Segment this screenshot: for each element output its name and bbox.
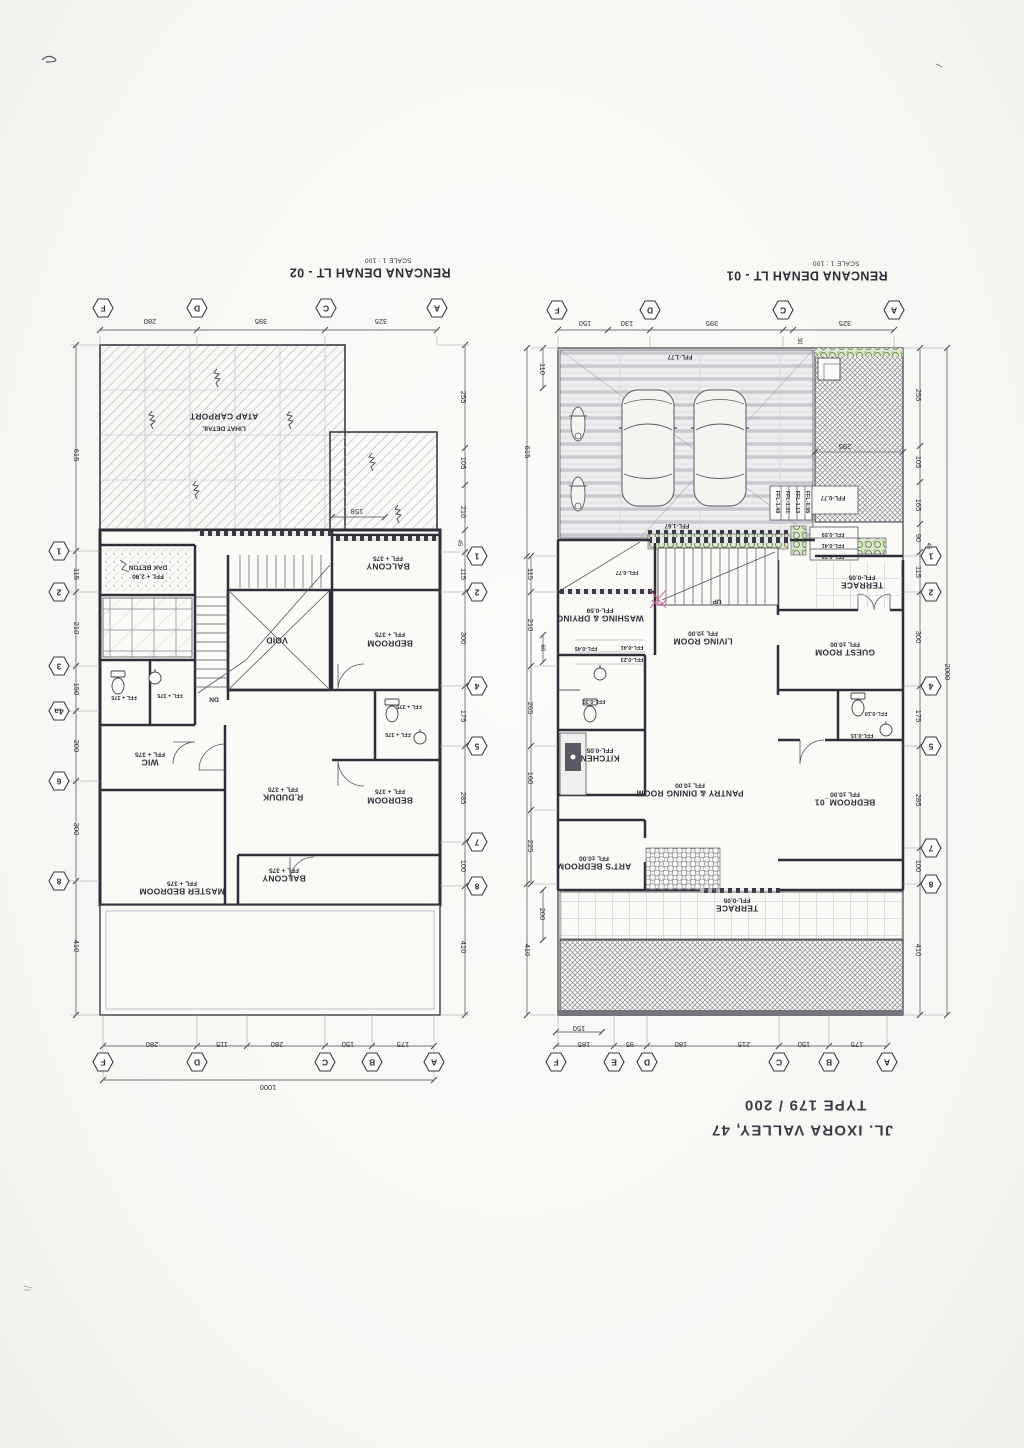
grid-bubble-label: A bbox=[434, 304, 440, 313]
dimension: 210 bbox=[526, 619, 534, 632]
plan-lt02-scale: SCALE 1 : 100 bbox=[365, 256, 412, 263]
level-label: FFL-0.77 bbox=[616, 568, 639, 574]
dimension: 180 bbox=[675, 1040, 688, 1048]
room-label: BEDROOM bbox=[367, 796, 413, 805]
dimension: 300 bbox=[459, 632, 467, 645]
grid-bubble-label: C bbox=[322, 1058, 328, 1067]
sheet-address-line: JL. IXORA VALLEY, 47 bbox=[711, 1123, 893, 1138]
dimension: 285 bbox=[459, 792, 467, 805]
level-label: FFL-1.77 bbox=[668, 353, 693, 359]
scanned-floorplan-sheet: SCALE 1 : 100 RENCANA DENAH LT - 02 SCAL… bbox=[0, 0, 1024, 1448]
room-label: BALCONY bbox=[262, 874, 305, 883]
dimension: 210 bbox=[72, 622, 80, 635]
dimension-total: 2000 bbox=[943, 664, 951, 681]
grid-bubble-label: A bbox=[891, 306, 897, 315]
grid-bubble-label: C bbox=[323, 304, 329, 313]
dimension: 115 bbox=[914, 566, 922, 578]
grid-bubble-label: D bbox=[644, 1058, 650, 1067]
dimension: 175 bbox=[851, 1040, 864, 1048]
dimension: 395 bbox=[706, 319, 719, 327]
room-sublabel: FFL-0.05 bbox=[724, 896, 751, 903]
dimension: 410 bbox=[72, 940, 80, 953]
dimension: 100 bbox=[459, 860, 467, 873]
grid-bubble-label: 4 bbox=[475, 682, 480, 691]
dimension: 395 bbox=[255, 317, 268, 325]
room-sublabel: FFL ±0.00 bbox=[579, 854, 609, 861]
dimension: 90 bbox=[914, 534, 922, 542]
dimension: 265 bbox=[526, 702, 534, 715]
level-label: FFL-0.23 bbox=[822, 552, 845, 558]
plan-lt01-title: RENCANA DENAH LT - 01 bbox=[726, 269, 887, 282]
grid-bubble-label: D bbox=[194, 1058, 200, 1067]
room-label: KITCHEN bbox=[580, 754, 619, 763]
dimension: 160 bbox=[526, 772, 534, 785]
dimension: 300 bbox=[72, 823, 80, 836]
dimension: 255 bbox=[914, 389, 922, 402]
room-label: BEDROOM bbox=[367, 639, 413, 648]
room-label: ATAP CARPORT bbox=[190, 412, 259, 421]
level-label: FFL-0.10 bbox=[865, 709, 888, 715]
room-sublabel: FFL ±0.00 bbox=[675, 781, 705, 788]
dimension: 105 bbox=[914, 456, 922, 469]
room-label: TERRACE bbox=[716, 904, 759, 913]
dimension: 60 bbox=[539, 645, 545, 652]
grid-bubble-label: 8 bbox=[929, 880, 934, 889]
grid-bubble-label: C bbox=[780, 306, 786, 315]
room-sublabel: FFL ±0.00 bbox=[830, 790, 860, 797]
grid-bubble-label: 5 bbox=[475, 742, 480, 751]
level-label: FFL-0.41 bbox=[621, 643, 644, 649]
grid-bubble-label: 6 bbox=[57, 777, 62, 786]
dimension: 150 bbox=[579, 319, 592, 327]
grid-bubble-label: A bbox=[431, 1058, 437, 1067]
dimension: 410 bbox=[459, 941, 467, 954]
grid-bubble-label: 3 bbox=[57, 662, 62, 671]
dimension: 200 bbox=[538, 908, 546, 921]
dimension: 100 bbox=[914, 860, 922, 873]
grid-bubble-label: 4 bbox=[929, 682, 934, 691]
dimension: 280 bbox=[146, 1040, 159, 1048]
dimension: 45 bbox=[925, 543, 931, 550]
dimension: 615 bbox=[523, 446, 531, 459]
grid-bubble-label: E bbox=[611, 1058, 617, 1067]
room-sublabel: FFL + 375 bbox=[167, 879, 197, 886]
room-label: WASHING & DRYING bbox=[556, 614, 643, 623]
level-label: FFL-1.13 bbox=[793, 491, 799, 514]
room-sublabel: FFL + 375 bbox=[268, 785, 298, 792]
level-label: FFL-1.49 bbox=[773, 491, 779, 514]
dimension: 175 bbox=[459, 710, 467, 723]
room-sublabel: FFL-0.05 bbox=[587, 746, 614, 753]
room-label: PANTRY & DINING ROOM bbox=[636, 789, 743, 798]
plan-lt02-linework bbox=[100, 345, 440, 1015]
dimension: 325 bbox=[375, 317, 388, 325]
dimension: 115 bbox=[459, 568, 467, 580]
dimension: 200 bbox=[72, 740, 80, 753]
dimension: 295 bbox=[839, 442, 852, 450]
grid-bubble-label: 1 bbox=[929, 552, 934, 561]
grid-bubble-label: 5 bbox=[929, 742, 934, 751]
dimension: 185 bbox=[578, 1040, 591, 1048]
floorplan-linework bbox=[0, 0, 1024, 1448]
level-label: FFL-0.59 bbox=[822, 530, 845, 536]
level-label: FFL + 375 bbox=[111, 693, 136, 699]
dimension: 225 bbox=[526, 840, 534, 853]
dimension: 325 bbox=[839, 319, 852, 327]
dimension: 615 bbox=[72, 449, 80, 462]
grid-bubble-label: 7 bbox=[929, 844, 934, 853]
sheet-type-line: TYPE 179 / 200 bbox=[744, 1098, 867, 1113]
level-label: FFL-0.30 bbox=[583, 697, 606, 703]
dimension: 175 bbox=[397, 1040, 410, 1048]
grid-bubble-label: 2 bbox=[929, 588, 934, 597]
room-sublabel: FFL-0.59 bbox=[587, 606, 614, 613]
grid-bubble-label: 8 bbox=[475, 882, 480, 891]
dimension: 285 bbox=[914, 794, 922, 807]
dimension: 210 bbox=[459, 506, 467, 519]
dimension: 255 bbox=[459, 391, 467, 404]
dimension: 45 bbox=[456, 540, 462, 547]
level-label: FFL-1.31 bbox=[783, 491, 789, 514]
dimension: 130 bbox=[621, 319, 634, 327]
level-label: FFL-0.23 bbox=[621, 655, 644, 661]
dimension: 150 bbox=[72, 683, 80, 696]
dimension: 150 bbox=[342, 1040, 355, 1048]
dimension: 110 bbox=[538, 363, 546, 375]
grid-bubble-label: 1 bbox=[57, 547, 62, 556]
grid-bubble-label: B bbox=[826, 1058, 832, 1067]
dimension: 410 bbox=[914, 944, 922, 957]
dimension: 115 bbox=[216, 1040, 228, 1048]
dimension: 280 bbox=[144, 317, 157, 325]
room-sublabel: FFL + 2.90 bbox=[132, 572, 164, 579]
dimension: 95 bbox=[626, 1040, 634, 1048]
grid-bubble-label: 2 bbox=[475, 588, 480, 597]
room-sublabel: FFL ±0.00 bbox=[830, 640, 860, 647]
level-label: FFL-0.77 bbox=[821, 494, 846, 500]
dimension: 150 bbox=[798, 1040, 811, 1048]
grid-bubble-label: 4a bbox=[54, 707, 63, 716]
room-sublabel: FFL + 375 bbox=[373, 554, 403, 561]
grid-bubble-label: D bbox=[647, 306, 653, 315]
room-label: DAK BETON bbox=[129, 563, 168, 570]
grid-bubble-label: F bbox=[100, 304, 105, 313]
room-sublabel: FFL ±0.00 bbox=[688, 629, 718, 636]
grid-bubble-label: B bbox=[369, 1058, 375, 1067]
plan-lt01-scale: SCALE 1 : 100 bbox=[813, 259, 860, 266]
room-sublabel: FFL-0.05 bbox=[849, 573, 876, 580]
level-label: FFL + 375 bbox=[396, 702, 421, 708]
dimension: 410 bbox=[523, 944, 531, 957]
plan-lt01-linework bbox=[558, 348, 906, 1016]
room-label: GUEST ROOM bbox=[815, 648, 875, 657]
dimension: 30 bbox=[796, 338, 802, 345]
level-label: FFL-0.15 bbox=[851, 731, 874, 737]
room-label: ART'S BEDROOM bbox=[557, 862, 632, 871]
dimension: 300 bbox=[914, 631, 922, 644]
level-label: FFL-1.67 bbox=[665, 522, 690, 528]
room-sublabel: FFL + 375 bbox=[375, 630, 405, 637]
dimension: 158 bbox=[351, 507, 364, 515]
dimension: 165 bbox=[914, 499, 922, 512]
room-sublabel: FFL + 375 bbox=[269, 866, 299, 873]
grid-bubble-label: F bbox=[553, 1058, 558, 1067]
stair-direction-label: UP bbox=[712, 597, 721, 604]
stair-direction-label: DN bbox=[209, 695, 218, 702]
room-label: MASTER BEDROOM bbox=[139, 887, 224, 896]
dimension: 175 bbox=[914, 710, 922, 723]
level-label: FFL-0.41 bbox=[822, 541, 845, 547]
dimension: 105 bbox=[459, 457, 467, 470]
grid-bubble-label: 1 bbox=[475, 552, 480, 561]
room-label: LIVING ROOM bbox=[673, 637, 732, 646]
grid-bubble-label: C bbox=[776, 1058, 782, 1067]
dimension: 150 bbox=[573, 1024, 586, 1032]
room-label: TERRACE bbox=[841, 581, 884, 590]
grid-bubble-label: 7 bbox=[475, 838, 480, 847]
level-label: FFL-0.95 bbox=[803, 491, 809, 514]
room-label: BEDROOM_01 bbox=[815, 798, 876, 807]
dimension: 115 bbox=[72, 568, 80, 580]
level-label: FFL + 375 bbox=[157, 691, 182, 697]
room-sublabel: LIHAT DETAIL bbox=[202, 424, 245, 431]
level-label: FFL-0.45 bbox=[575, 644, 598, 650]
dimension: 115 bbox=[526, 568, 534, 580]
grid-bubble-label: 8 bbox=[57, 877, 62, 886]
dimension-total: 1000 bbox=[260, 1083, 277, 1091]
room-label: WIC bbox=[141, 758, 158, 767]
grid-bubble-label: F bbox=[554, 306, 559, 315]
dimension: 280 bbox=[271, 1040, 284, 1048]
grid-bubble-label: D bbox=[194, 304, 200, 313]
level-label: FFL + 375 bbox=[385, 730, 410, 736]
grid-bubble-label: F bbox=[100, 1058, 105, 1067]
plan-lt02-title: RENCANA DENAH LT - 02 bbox=[289, 266, 450, 279]
room-label: VOID bbox=[266, 636, 288, 645]
room-sublabel: FFL + 375 bbox=[135, 750, 165, 757]
room-sublabel: FFL + 375 bbox=[375, 787, 405, 794]
dimension: 215 bbox=[738, 1040, 751, 1048]
room-label: BALCONY bbox=[366, 562, 409, 571]
grid-bubble-label: A bbox=[884, 1058, 890, 1067]
grid-bubble-label: 2 bbox=[57, 588, 62, 597]
room-label: R.DUDUK bbox=[263, 793, 304, 802]
